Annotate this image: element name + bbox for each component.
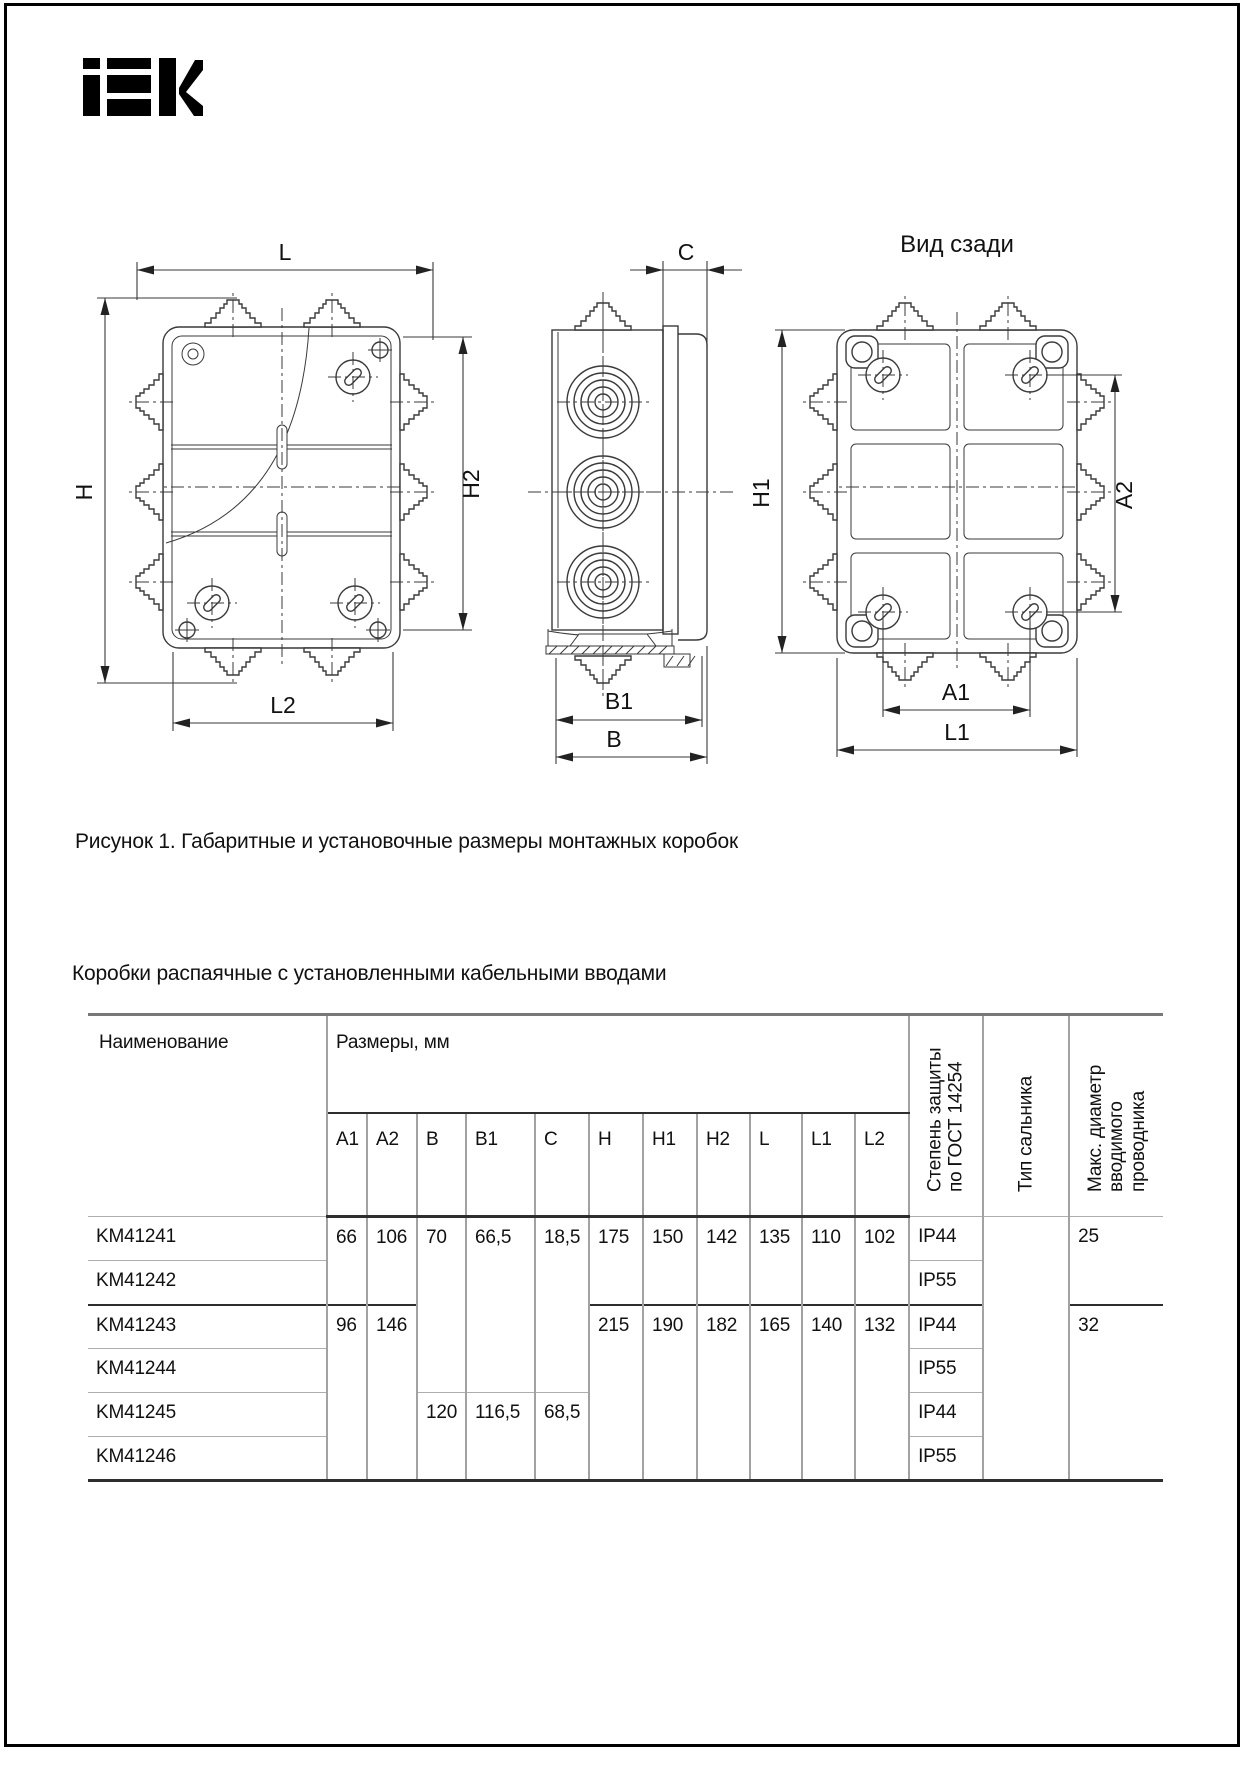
cell-c: 68,5 — [535, 1393, 589, 1481]
dimensions-table: Наименование Размеры, мм Степень защиты … — [88, 1013, 1163, 1482]
header-max-diameter: Макс. диаметр вводимого проводника — [1069, 1015, 1163, 1217]
cell-c: 18,5 — [535, 1217, 589, 1393]
cell-b1: 66,5 — [466, 1217, 535, 1393]
cell-ip: IP44 — [909, 1393, 983, 1437]
cell-b: 120 — [417, 1393, 466, 1481]
figure-drawing: L H H2 L2 — [0, 0, 1244, 800]
cell-h: 175 — [589, 1217, 643, 1305]
cell-h: 215 — [589, 1305, 643, 1481]
header-col-l: L — [750, 1113, 802, 1217]
table-row: KM41241 66 106 70 66,5 18,5 175 150 142 … — [88, 1217, 1163, 1261]
header-col-b: B — [417, 1113, 466, 1217]
dim-label-l2: L2 — [270, 692, 296, 718]
cell-ip: IP44 — [909, 1217, 983, 1261]
dim-label-l: L — [279, 239, 292, 265]
header-col-h1: H1 — [643, 1113, 697, 1217]
rear-view-title: Вид сзади — [900, 231, 1014, 258]
cell-l: 165 — [750, 1305, 802, 1481]
dim-label-h: H — [71, 484, 97, 501]
header-name: Наименование — [88, 1015, 327, 1217]
cell-b1: 116,5 — [466, 1393, 535, 1481]
cell-product-name: KM41245 — [88, 1393, 327, 1437]
rear-view: Вид сзади — [748, 231, 1137, 757]
dim-label-a1: A1 — [942, 679, 970, 705]
dim-label-c: C — [678, 239, 695, 265]
header-col-b1: B1 — [466, 1113, 535, 1217]
dim-label-b: B — [606, 726, 621, 752]
dim-label-h2: H2 — [458, 469, 484, 498]
datasheet-page: L H H2 L2 — [0, 0, 1244, 1785]
header-col-l2: L2 — [855, 1113, 909, 1217]
cell-a1: 96 — [327, 1305, 367, 1481]
header-col-c: C — [535, 1113, 589, 1217]
cell-l2: 102 — [855, 1217, 909, 1305]
figure-caption: Рисунок 1. Габаритные и установочные раз… — [75, 830, 738, 854]
cell-l1: 110 — [802, 1217, 855, 1305]
header-col-l1: L1 — [802, 1113, 855, 1217]
header-col-h2: H2 — [697, 1113, 750, 1217]
cell-l1: 140 — [802, 1305, 855, 1481]
header-sizes-group: Размеры, мм — [327, 1015, 909, 1114]
cell-ip: IP55 — [909, 1261, 983, 1305]
side-view: C B1 B — [528, 239, 742, 764]
cell-product-name: KM41244 — [88, 1349, 327, 1393]
cell-ip: IP44 — [909, 1305, 983, 1349]
cell-h1: 150 — [643, 1217, 697, 1305]
header-protection: Степень защиты по ГОСТ 14254 — [909, 1015, 983, 1217]
cell-max-diameter: 25 — [1069, 1217, 1163, 1305]
cell-a2: 106 — [367, 1217, 417, 1305]
cell-h2: 182 — [697, 1305, 750, 1481]
header-col-h: H — [589, 1113, 643, 1217]
cell-h2: 142 — [697, 1217, 750, 1305]
cell-h1: 190 — [643, 1305, 697, 1481]
cell-a1: 66 — [327, 1217, 367, 1305]
cell-a2: 146 — [367, 1305, 417, 1481]
cell-l: 135 — [750, 1217, 802, 1305]
dim-label-b1: B1 — [605, 688, 633, 714]
cell-product-name: KM41246 — [88, 1437, 327, 1481]
header-col-a2: A2 — [367, 1113, 417, 1217]
cell-gland-type — [983, 1217, 1069, 1481]
cell-l2: 132 — [855, 1305, 909, 1481]
cell-product-name: KM41241 — [88, 1217, 327, 1261]
header-col-a1: A1 — [327, 1113, 367, 1217]
cell-ip: IP55 — [909, 1349, 983, 1393]
front-view: L H H2 L2 — [71, 239, 484, 731]
cell-product-name: KM41242 — [88, 1261, 327, 1305]
cell-product-name: KM41243 — [88, 1305, 327, 1349]
cell-b: 70 — [417, 1217, 466, 1393]
table-heading: Коробки распаячные с установленными кабе… — [72, 962, 666, 986]
dim-label-h1: H1 — [748, 478, 774, 507]
cell-max-diameter: 32 — [1069, 1305, 1163, 1481]
dim-label-l1: L1 — [944, 719, 970, 745]
header-gland-type: Тип сальника — [983, 1015, 1069, 1217]
cell-ip: IP55 — [909, 1437, 983, 1481]
dim-label-a2: A2 — [1111, 481, 1137, 509]
